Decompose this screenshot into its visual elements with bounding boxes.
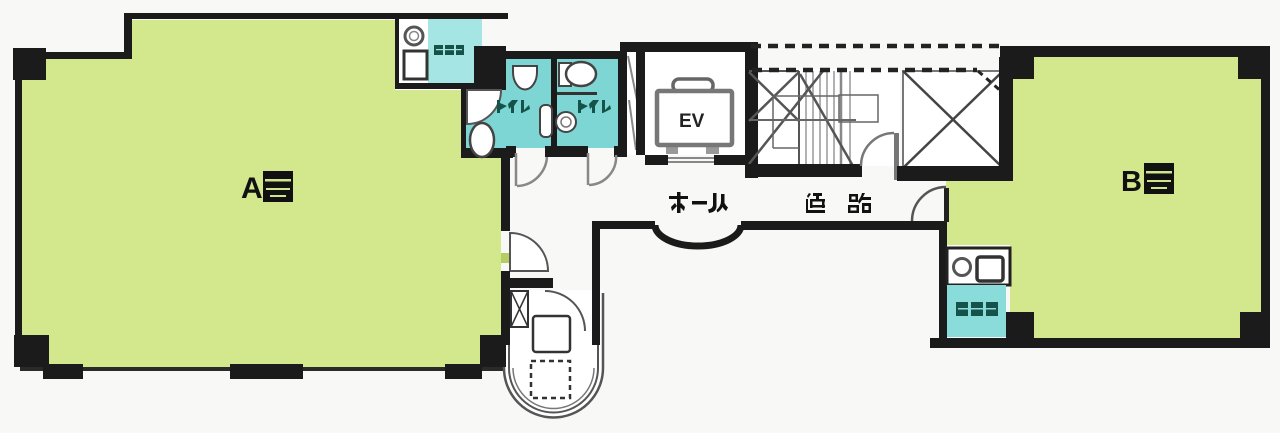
svg-text:EV: EV (679, 111, 705, 132)
svg-text:B: B (1121, 166, 1142, 198)
svg-text:A: A (241, 172, 263, 205)
